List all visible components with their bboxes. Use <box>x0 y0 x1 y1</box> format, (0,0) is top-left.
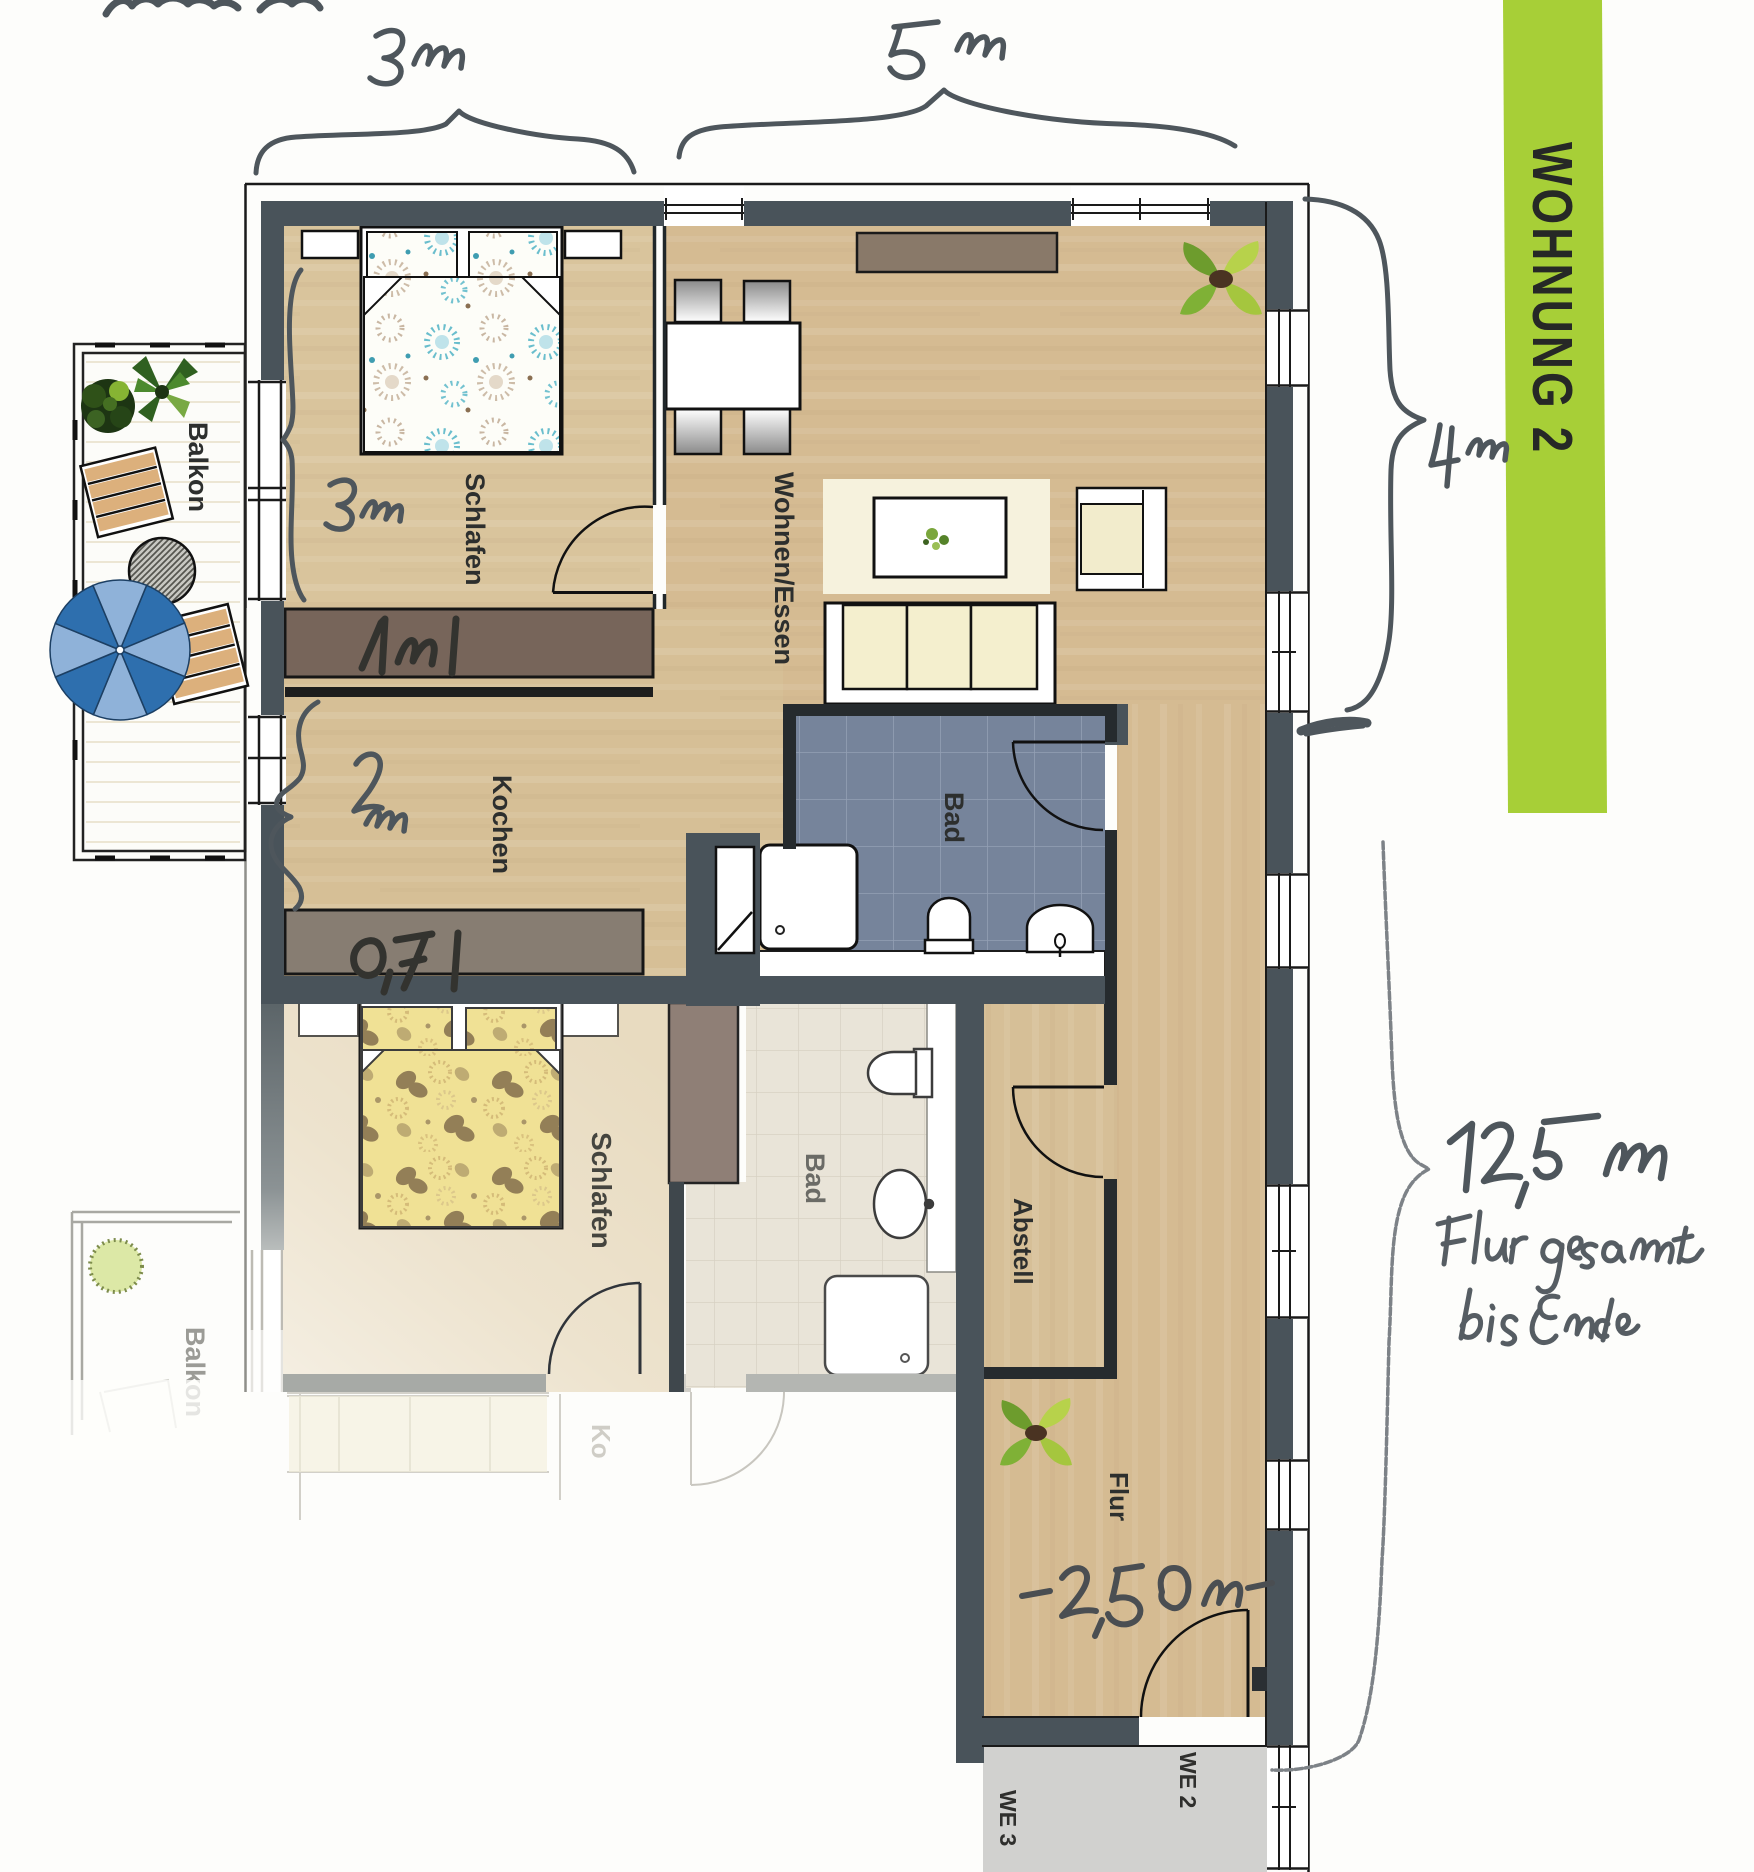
svg-text:WOHNUNG 2: WOHNUNG 2 <box>1521 142 1583 455</box>
svg-text:WE 2: WE 2 <box>1175 1752 1201 1808</box>
svg-text:Abstell: Abstell <box>1008 1198 1038 1285</box>
svg-text:Schlafen: Schlafen <box>586 1132 617 1249</box>
svg-text:Balkon: Balkon <box>183 422 213 512</box>
svg-text:Flur: Flur <box>1104 1472 1134 1521</box>
svg-text:Wohnen/Essen: Wohnen/Essen <box>769 472 799 665</box>
svg-text:WE 3: WE 3 <box>995 1790 1021 1846</box>
svg-text:Bad: Bad <box>939 792 969 843</box>
svg-text:Ko: Ko <box>586 1424 616 1459</box>
svg-text:Kochen: Kochen <box>487 775 517 874</box>
svg-text:Schlafen: Schlafen <box>460 473 490 586</box>
svg-text:Bad: Bad <box>800 1153 830 1204</box>
